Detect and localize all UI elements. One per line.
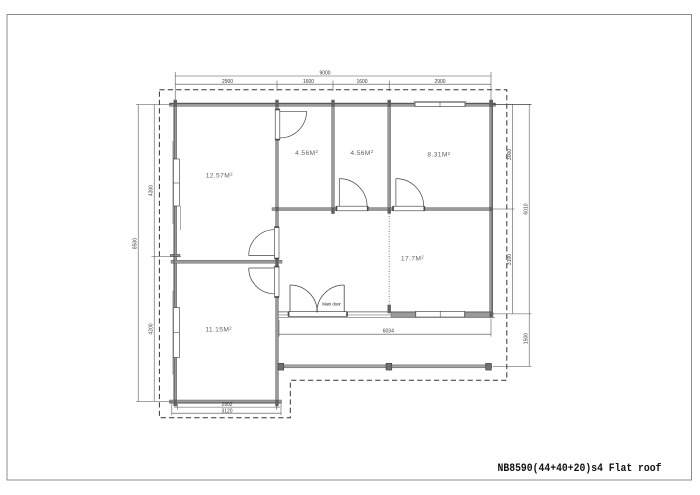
svg-text:4.56M2: 4.56M2	[350, 149, 373, 157]
svg-text:2900: 2900	[222, 79, 233, 85]
svg-text:4200: 4200	[149, 323, 155, 334]
svg-text:3100: 3100	[507, 254, 513, 265]
svg-text:3000: 3000	[507, 149, 513, 160]
svg-text:3120: 3120	[221, 408, 232, 414]
svg-text:12.57M2: 12.57M2	[206, 172, 233, 180]
svg-text:4300: 4300	[149, 185, 155, 196]
svg-text:17.7M2: 17.7M2	[401, 255, 424, 263]
svg-text:9000: 9000	[319, 71, 330, 77]
svg-text:6010: 6010	[524, 203, 530, 214]
svg-text:8500: 8500	[133, 238, 139, 249]
svg-text:8.31M2: 8.31M2	[427, 151, 450, 159]
svg-text:4.56M2: 4.56M2	[295, 149, 318, 157]
svg-text:1600: 1600	[356, 79, 367, 85]
svg-text:2900: 2900	[434, 79, 445, 85]
svg-text:Main door: Main door	[322, 302, 341, 307]
svg-text:2902: 2902	[221, 402, 232, 408]
svg-text:NB8590(44+40+20)s4 Flat roof: NB8590(44+40+20)s4 Flat roof	[498, 463, 662, 475]
svg-text:1600: 1600	[303, 79, 314, 85]
svg-text:1500: 1500	[524, 333, 530, 344]
svg-text:6034: 6034	[383, 329, 394, 335]
svg-text:11.15M2: 11.15M2	[205, 326, 232, 334]
